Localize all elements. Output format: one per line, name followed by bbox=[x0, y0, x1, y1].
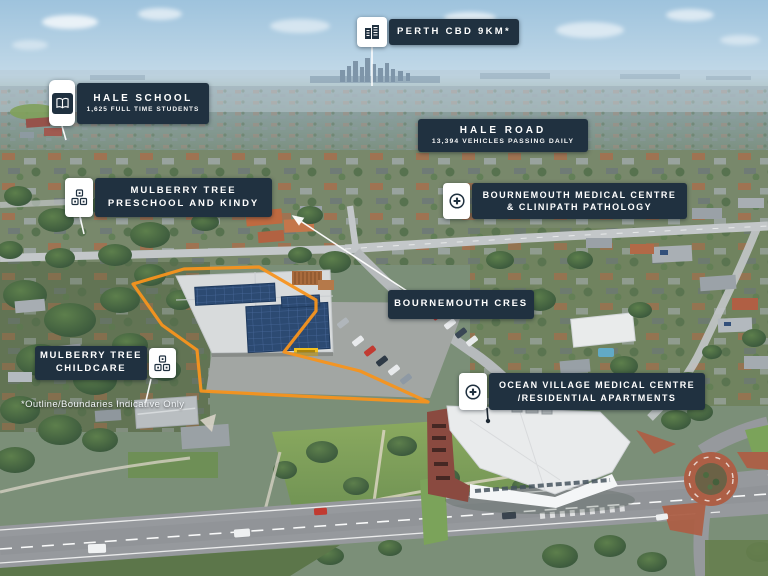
callout-text: MULBERRY TREE bbox=[131, 185, 237, 198]
callout-subtext: 13,394 VEHICLES PASSING DAILY bbox=[432, 137, 574, 147]
callout-perth-cbd: PERTH CBD 9KM* bbox=[357, 17, 519, 47]
callout-text: BOURNEMOUTH CRES bbox=[394, 298, 528, 311]
callout-text: BOURNEMOUTH MEDICAL CENTRE bbox=[483, 189, 677, 201]
callout-badge: OCEAN VILLAGE MEDICAL CENTRE /RESIDENTIA… bbox=[489, 373, 705, 410]
city-buildings-icon bbox=[357, 17, 387, 47]
callout-bournemouth-medical: BOURNEMOUTH MEDICAL CENTRE & CLINIPATH P… bbox=[443, 183, 687, 219]
callout-text: /RESIDENTIAL APARTMENTS bbox=[518, 392, 677, 404]
callout-text: OCEAN VILLAGE MEDICAL CENTRE bbox=[499, 379, 695, 391]
toy-blocks-icon bbox=[149, 348, 176, 378]
callout-badge: PERTH CBD 9KM* bbox=[389, 19, 519, 45]
toy-blocks-icon bbox=[65, 178, 93, 217]
callout-text: PERTH CBD 9KM* bbox=[397, 26, 511, 39]
medical-cross-icon bbox=[443, 183, 470, 219]
callout-badge: BOURNEMOUTH MEDICAL CENTRE & CLINIPATH P… bbox=[472, 183, 687, 219]
callout-hale-school: HALE SCHOOL 1,625 FULL TIME STUDENTS bbox=[49, 80, 209, 126]
open-book-icon bbox=[49, 80, 75, 126]
callout-mulberry-childcare: MULBERRY TREE CHILDCARE bbox=[35, 346, 176, 380]
callout-bournemouth-cres: BOURNEMOUTH CRES bbox=[388, 290, 534, 319]
callout-ocean-village: OCEAN VILLAGE MEDICAL CENTRE /RESIDENTIA… bbox=[459, 373, 705, 410]
callout-badge: BOURNEMOUTH CRES bbox=[388, 290, 534, 319]
callout-text: PRESCHOOL AND KINDY bbox=[108, 198, 259, 211]
callout-badge: MULBERRY TREE PRESCHOOL AND KINDY bbox=[95, 178, 272, 217]
callout-badge: HALE SCHOOL 1,625 FULL TIME STUDENTS bbox=[77, 83, 209, 124]
boundary-disclaimer: *Outline/Boundaries Indicative Only bbox=[21, 399, 184, 410]
annotated-aerial-image: PERTH CBD 9KM* HALE SCHOOL 1,625 FULL TI… bbox=[0, 0, 768, 576]
medical-cross-icon bbox=[459, 373, 487, 410]
callout-badge: MULBERRY TREE CHILDCARE bbox=[35, 346, 147, 380]
callout-hale-road: HALE ROAD 13,394 VEHICLES PASSING DAILY bbox=[418, 119, 588, 152]
callout-text: & CLINIPATH PATHOLOGY bbox=[507, 201, 652, 213]
callout-subtext: 1,625 FULL TIME STUDENTS bbox=[87, 105, 200, 115]
callout-text: MULBERRY TREE bbox=[40, 350, 142, 363]
callout-mulberry-preschool: MULBERRY TREE PRESCHOOL AND KINDY bbox=[65, 178, 272, 217]
callout-text: HALE SCHOOL bbox=[93, 92, 192, 106]
callout-text: CHILDCARE bbox=[56, 363, 126, 376]
callout-badge: HALE ROAD 13,394 VEHICLES PASSING DAILY bbox=[418, 119, 588, 152]
callout-text: HALE ROAD bbox=[460, 124, 546, 138]
